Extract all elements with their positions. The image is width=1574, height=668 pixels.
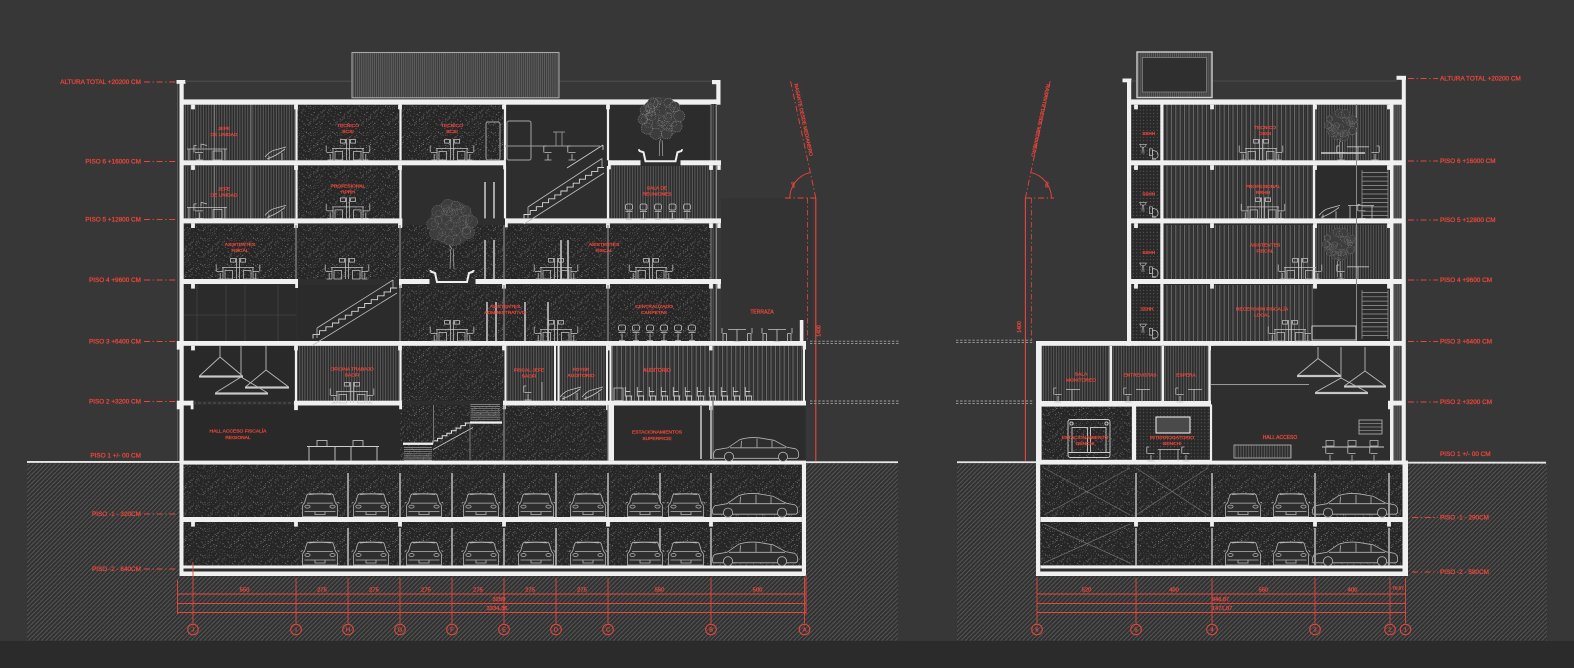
svg-text:PISO 2 +3200 CM: PISO 2 +3200 CM	[89, 399, 141, 406]
svg-text:PISO 6 +16000 CM: PISO 6 +16000 CM	[85, 159, 141, 166]
svg-text:275: 275	[369, 588, 379, 594]
svg-text:ESPERA: ESPERA	[1176, 373, 1196, 379]
svg-text:C: C	[606, 628, 610, 634]
svg-text:HALL ACCESO FISCALÍA: HALL ACCESO FISCALÍA	[210, 428, 268, 435]
svg-text:6: 6	[1035, 628, 1038, 634]
svg-text:SSHH: SSHH	[1142, 250, 1155, 255]
svg-text:PISO 3 +6400 CM: PISO 3 +6400 CM	[1440, 339, 1492, 346]
svg-text:PISO 5 +12800 CM: PISO 5 +12800 CM	[1440, 217, 1496, 224]
svg-text:400: 400	[1348, 588, 1358, 594]
svg-text:CARPETAS: CARPETAS	[641, 310, 668, 316]
svg-text:SALA DE: SALA DE	[647, 186, 668, 192]
svg-text:A: A	[803, 628, 807, 634]
svg-text:PISO 4 +9600 CM: PISO 4 +9600 CM	[89, 277, 141, 284]
svg-text:DE UNIDAD: DE UNIDAD	[211, 193, 238, 199]
svg-text:275: 275	[317, 588, 327, 594]
svg-text:FISCAL: FISCAL	[595, 248, 612, 254]
svg-text:CENTRALIZADO: CENTRALIZADO	[635, 304, 673, 310]
svg-text:3250: 3250	[493, 597, 506, 603]
svg-text:AUDITORIO: AUDITORIO	[567, 373, 594, 379]
svg-text:550: 550	[655, 588, 665, 594]
svg-text:TECNICO: TECNICO	[1254, 125, 1276, 131]
svg-text:E: E	[502, 628, 506, 634]
svg-text:REGIONAL: REGIONAL	[225, 435, 251, 441]
svg-text:400: 400	[1169, 588, 1179, 594]
svg-text:SSHH: SSHH	[1142, 192, 1155, 197]
svg-text:76,87: 76,87	[1392, 586, 1404, 591]
svg-text:B: B	[709, 628, 713, 634]
svg-text:OSGI: OSGI	[1259, 131, 1271, 137]
svg-text:HALL ACCESO: HALL ACCESO	[1263, 435, 1298, 441]
svg-text:275: 275	[421, 588, 431, 594]
svg-text:ASISTENTES: ASISTENTES	[225, 242, 256, 248]
svg-text:275: 275	[577, 588, 587, 594]
svg-text:FISCAL: FISCAL	[231, 248, 248, 254]
svg-text:TECNICO: TECNICO	[337, 123, 359, 129]
svg-text:JEFE: JEFE	[218, 187, 231, 193]
svg-text:1400: 1400	[816, 325, 822, 337]
svg-text:LOCAL: LOCAL	[1254, 313, 1270, 319]
svg-text:550: 550	[240, 588, 250, 594]
svg-text:ADMINISTRATIVO: ADMINISTRATIVO	[484, 310, 525, 316]
svg-text:ALTURA TOTAL +20200 CM: ALTURA TOTAL +20200 CM	[1440, 76, 1521, 83]
svg-text:PISO 5 +12800 CM: PISO 5 +12800 CM	[85, 217, 141, 224]
svg-text:3: 3	[1313, 628, 1316, 634]
svg-text:SSHH: SSHH	[1142, 131, 1155, 136]
svg-text:TERRAZA: TERRAZA	[750, 310, 774, 316]
svg-text:2: 2	[1388, 628, 1391, 634]
svg-text:275: 275	[473, 588, 483, 594]
svg-text:J: J	[192, 628, 195, 634]
svg-text:FISCAL: FISCAL	[1256, 249, 1273, 255]
svg-text:3334,36: 3334,36	[487, 606, 508, 612]
svg-text:G: G	[398, 628, 403, 634]
svg-text:ESTACIONAMIENTO: ESTACIONAMIENTO	[1062, 435, 1109, 441]
svg-text:PISO 1 +/- 00 CM: PISO 1 +/- 00 CM	[90, 453, 141, 460]
svg-text:ALTURA TOTAL +20200 CM: ALTURA TOTAL +20200 CM	[60, 79, 141, 86]
svg-text:F: F	[450, 628, 454, 634]
svg-text:H: H	[346, 628, 350, 634]
svg-text:520: 520	[1082, 588, 1092, 594]
svg-text:PISO 4 +9600 CM: PISO 4 +9600 CM	[1440, 277, 1492, 284]
svg-text:OFICINA TRABAJO: OFICINA TRABAJO	[330, 367, 374, 373]
svg-text:1: 1	[1404, 628, 1407, 634]
svg-text:ASISTENTES: ASISTENTES	[490, 304, 521, 310]
svg-text:PISO -1 - 290CM: PISO -1 - 290CM	[1440, 515, 1489, 522]
svg-text:FOYER: FOYER	[573, 367, 590, 373]
svg-text:ASISTENTES: ASISTENTES	[589, 242, 620, 248]
svg-text:ASISTENTES: ASISTENTES	[1250, 243, 1281, 249]
svg-text:GENCHI: GENCHI	[1075, 441, 1094, 447]
svg-text:946,87: 946,87	[1212, 597, 1229, 603]
svg-text:RECEPCIÓN FISCALÍA: RECEPCIÓN FISCALÍA	[1236, 306, 1289, 313]
svg-text:FISCAL JEFE: FISCAL JEFE	[514, 368, 545, 374]
svg-text:PISO 1 +/- 00 CM: PISO 1 +/- 00 CM	[1440, 451, 1491, 458]
svg-text:SALA: SALA	[1075, 372, 1088, 378]
svg-text:1400: 1400	[1017, 321, 1023, 333]
svg-text:JEFE: JEFE	[218, 126, 231, 132]
svg-text:RPHH: RPHH	[341, 190, 355, 196]
svg-text:PISO -2 - 580CM: PISO -2 - 580CM	[1440, 569, 1489, 576]
svg-text:TECNICO: TECNICO	[441, 123, 463, 129]
svg-text:5: 5	[1134, 628, 1137, 634]
svg-text:INTERROGATORIO: INTERROGATORIO	[1150, 435, 1194, 441]
svg-text:ESTACIONAMIENTOS: ESTACIONAMIENTOS	[632, 430, 683, 436]
svg-text:275: 275	[525, 588, 535, 594]
svg-text:BCSI: BCSI	[342, 129, 353, 135]
svg-text:GENCHI: GENCHI	[1162, 441, 1181, 447]
svg-text:PISO 3 +6400 CM: PISO 3 +6400 CM	[89, 339, 141, 346]
svg-text:ENTREVISTAS: ENTREVISTAS	[1124, 373, 1157, 379]
svg-text:PISO 2 +3200 CM: PISO 2 +3200 CM	[1440, 399, 1492, 406]
svg-text:REUNIONES: REUNIONES	[642, 192, 672, 198]
svg-text:PISO -2 - 640CM: PISO -2 - 640CM	[92, 566, 141, 573]
svg-text:550: 550	[1259, 588, 1269, 594]
svg-text:AUDITORIO: AUDITORIO	[643, 368, 671, 374]
svg-text:PROFESIONAL: PROFESIONAL	[331, 184, 366, 190]
svg-text:1471,87: 1471,87	[1212, 606, 1232, 612]
svg-text:PROFESIONAL: PROFESIONAL	[1246, 184, 1281, 190]
svg-text:500: 500	[753, 588, 763, 594]
svg-text:SACFI: SACFI	[345, 373, 359, 379]
svg-text:SSHH: SSHH	[1141, 307, 1154, 312]
svg-text:BCSI: BCSI	[446, 129, 457, 135]
svg-text:D: D	[554, 628, 558, 634]
svg-text:RRHH: RRHH	[1256, 190, 1271, 196]
svg-text:PISO 6 +16000 CM: PISO 6 +16000 CM	[1440, 158, 1496, 165]
svg-text:DE UNIDAD: DE UNIDAD	[211, 132, 238, 138]
svg-text:PISO -1 - 320CM: PISO -1 - 320CM	[92, 511, 141, 518]
svg-text:SUPERFICIE: SUPERFICIE	[642, 436, 672, 442]
svg-text:MONITOREO: MONITOREO	[1066, 378, 1096, 384]
svg-text:SACFI: SACFI	[522, 374, 536, 380]
